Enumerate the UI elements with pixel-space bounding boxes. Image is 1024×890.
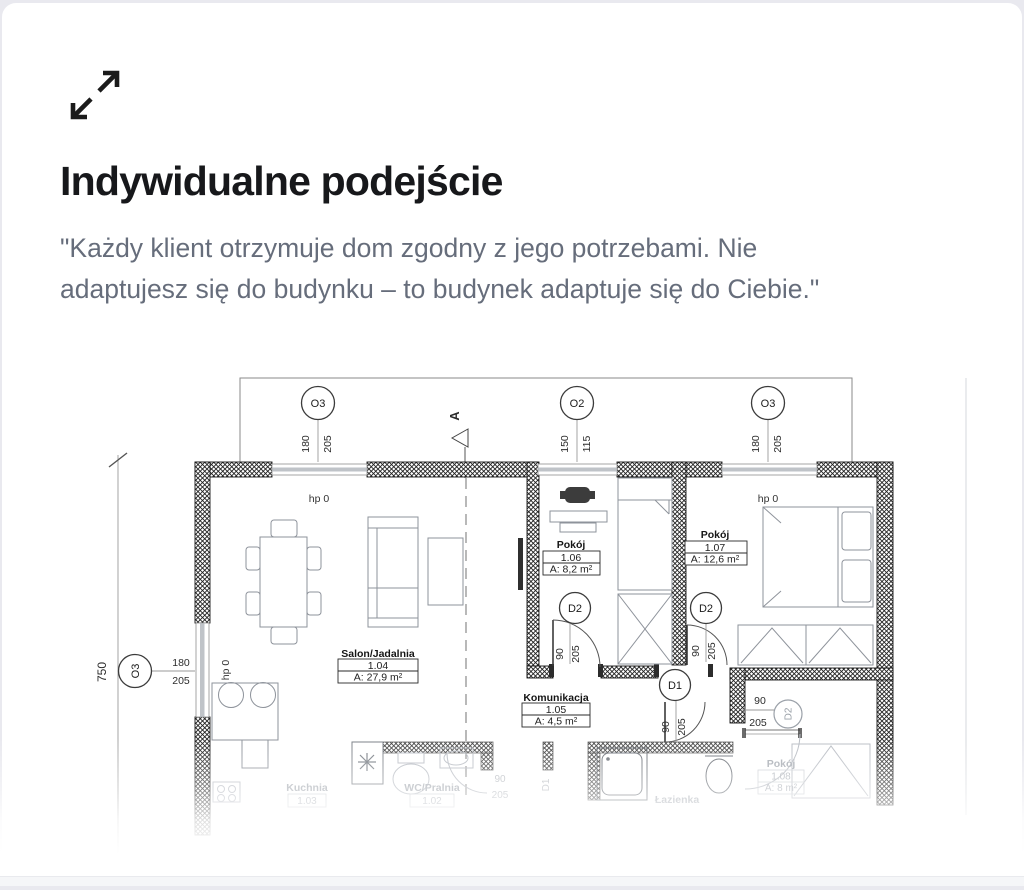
floor-plan: O3 180 205 O2 150 115 O3 180 205 A 750 O… <box>0 370 1024 885</box>
svg-text:1.03: 1.03 <box>297 796 317 807</box>
axis-label: O2 <box>570 398 585 410</box>
level-marker: hp 0 <box>220 660 232 681</box>
floor-plan-svg: O3 180 205 O2 150 115 O3 180 205 A 750 O… <box>0 370 1024 885</box>
window-dim: 150 <box>559 435 571 453</box>
room-label-lazienka: Łazienka <box>655 794 700 806</box>
svg-text:90: 90 <box>690 645 702 657</box>
svg-text:205: 205 <box>749 717 767 729</box>
window-dim: 205 <box>322 435 334 453</box>
svg-text:A: 4,5 m²: A: 4,5 m² <box>535 716 578 728</box>
room-label-komunikacja: Komunikacja 1.05 A: 4,5 m² <box>522 692 590 728</box>
room-label-pokoj-107: Pokój 1.07 A: 12,6 m² <box>685 529 747 566</box>
svg-text:1.06: 1.06 <box>561 552 582 564</box>
svg-text:1.07: 1.07 <box>705 542 726 554</box>
door-marker-d1: D1 <box>668 680 682 692</box>
svg-text:1.05: 1.05 <box>546 704 567 716</box>
axis-label: O3 <box>761 398 776 410</box>
plan-windows <box>196 464 817 717</box>
level-marker: hp 0 <box>309 493 330 505</box>
svg-text:205: 205 <box>676 718 688 736</box>
svg-text:A: 8,2 m²: A: 8,2 m² <box>550 564 593 576</box>
expand-arrows-icon <box>60 60 130 130</box>
overall-dim: 750 <box>95 662 109 682</box>
svg-text:Pokój: Pokój <box>557 539 586 551</box>
svg-text:Pokój: Pokój <box>767 758 796 770</box>
svg-text:90: 90 <box>494 774 506 785</box>
svg-text:Salon/Jadalnia: Salon/Jadalnia <box>341 648 415 660</box>
svg-text:1.08: 1.08 <box>771 772 791 783</box>
plan-furniture <box>212 478 873 802</box>
svg-text:A: 8 m²: A: 8 m² <box>765 783 798 794</box>
plan-doors: 90 205 D2 90 205 D2 90 205 D1 90 205 D2 <box>447 593 802 802</box>
single-bed <box>618 478 672 590</box>
coffee-table <box>428 538 463 605</box>
svg-text:A: 12,6 m²: A: 12,6 m² <box>691 554 740 566</box>
door-marker-d2: D2 <box>699 603 713 615</box>
axis-marker-o3-right: O3 180 205 <box>750 387 785 463</box>
room-label-pokoj-106: Pokój 1.06 A: 8,2 m² <box>543 539 600 576</box>
svg-text:WC/Pralnia: WC/Pralnia <box>404 782 460 794</box>
svg-text:90: 90 <box>754 695 766 707</box>
svg-text:A: A <box>447 411 462 421</box>
kitchen-counter <box>212 683 278 803</box>
window-dim: 205 <box>172 675 190 687</box>
axis-label: O3 <box>311 398 326 410</box>
svg-text:205: 205 <box>492 790 509 801</box>
svg-text:1.02: 1.02 <box>422 796 442 807</box>
svg-text:Kuchnia: Kuchnia <box>286 782 328 794</box>
sofa <box>368 517 418 627</box>
left-dimension: 750 O3 180 205 hp 0 <box>95 453 232 875</box>
page: { "header": { "icon": "expand-diagonal-a… <box>0 0 1024 885</box>
page-title: Indywidualne podejście <box>60 158 503 205</box>
window-dim: 180 <box>172 657 190 669</box>
door-marker-d2: D2 <box>568 603 582 615</box>
door-marker-d2: D2 <box>784 707 795 720</box>
axis-label: O3 <box>130 664 142 679</box>
wardrobe-106 <box>618 594 672 664</box>
room-label-pokoj-108: Pokój 1.08 A: 8 m² <box>758 758 804 794</box>
svg-text:1.04: 1.04 <box>368 660 389 672</box>
svg-text:A: 27,9 m²: A: 27,9 m² <box>354 672 403 684</box>
svg-text:90: 90 <box>660 721 672 733</box>
window-dim: 205 <box>772 435 784 453</box>
tv <box>518 538 523 590</box>
svg-text:Komunikacja: Komunikacja <box>523 692 589 704</box>
desk-and-chair <box>550 487 607 532</box>
washing-machine <box>352 742 383 784</box>
quote-text: "Każdy klient otrzymuje dom zgodny z jeg… <box>60 228 888 310</box>
window-dim: 180 <box>750 435 762 453</box>
wardrobe-107 <box>738 625 873 665</box>
dining-table <box>246 520 321 644</box>
window-dim: 180 <box>300 435 312 453</box>
door-marker-d1: D1 <box>541 778 552 791</box>
axis-marker-o2: O2 150 115 <box>559 387 594 463</box>
room-label-salon: Salon/Jadalnia 1.04 A: 27,9 m² <box>338 648 418 684</box>
axis-marker-o3-left: O3 180 205 <box>300 387 335 463</box>
room-label-wc-pralnia: WC/Pralnia 1.02 <box>404 782 460 807</box>
svg-text:205: 205 <box>570 645 582 663</box>
bathroom-sink <box>705 756 733 793</box>
level-marker: hp 0 <box>758 493 779 505</box>
svg-text:Pokój: Pokój <box>701 529 730 541</box>
shower <box>597 748 647 800</box>
svg-text:90: 90 <box>554 648 566 660</box>
svg-text:205: 205 <box>706 642 718 660</box>
window-dim: 115 <box>581 435 593 452</box>
room-label-kuchnia: Kuchnia 1.03 <box>286 782 328 807</box>
double-bed <box>763 507 873 607</box>
